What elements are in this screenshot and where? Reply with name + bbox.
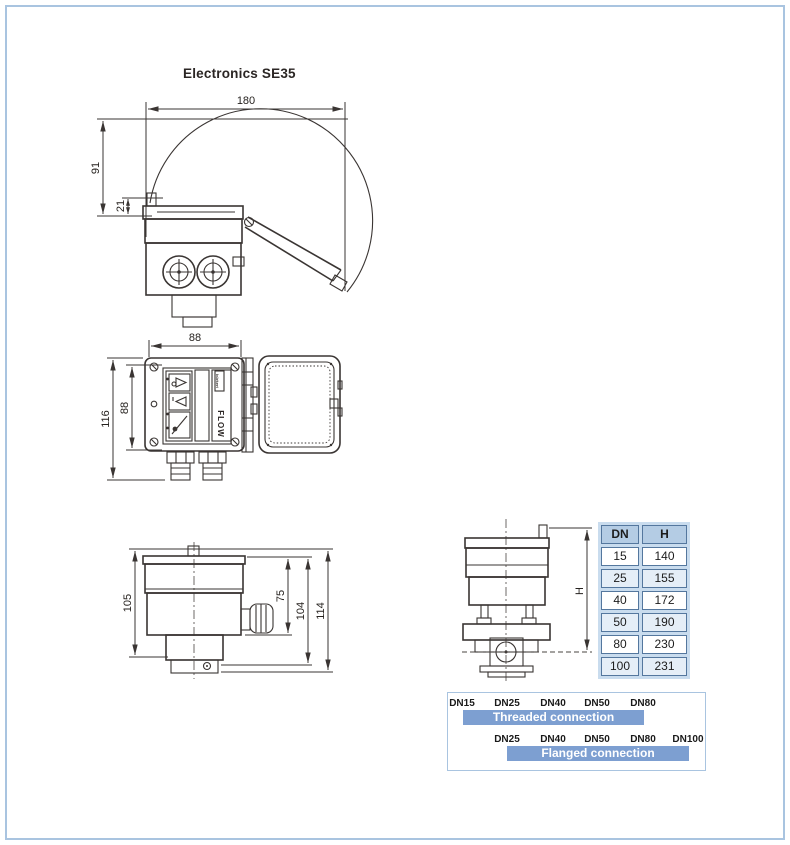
dim-h-label: H	[574, 587, 586, 595]
drawing-lid-open-view: 180 91 21	[90, 95, 373, 327]
dim-75-label: 75	[275, 590, 287, 602]
dn-h-table: DN H 15 140 25 155 40 172 50 190 80	[598, 522, 690, 679]
dim-88-width: 88	[149, 332, 241, 357]
brand-text: bürkert	[215, 374, 220, 388]
dim-75: 75	[245, 557, 312, 635]
datasheet-page: Electronics SE35	[0, 0, 790, 845]
h-value: 230	[642, 635, 687, 654]
dn-column-header: DN	[601, 525, 639, 544]
dim-104-label: 104	[295, 602, 307, 620]
open-lid	[245, 217, 348, 291]
dn-value: 80	[601, 635, 639, 654]
dn-size-label: DN80	[630, 698, 656, 709]
dim-h: H	[549, 528, 592, 650]
side-cable-gland	[241, 604, 273, 633]
dim-91-label: 91	[90, 162, 102, 174]
dn-value: 40	[601, 591, 639, 610]
dn-size-label: DN25	[494, 698, 520, 709]
dn-size-label: DN50	[584, 734, 610, 745]
dim-180-label: 180	[237, 95, 255, 107]
cable-gland-circles	[163, 256, 229, 288]
table-row: 50 190	[601, 613, 687, 632]
front-cable-glands	[167, 452, 226, 480]
dim-91: 91	[90, 119, 348, 216]
drawing-front-view: bürkert FLOW	[100, 332, 342, 480]
dim-116-label: 116	[100, 410, 112, 428]
dim-21-label: 21	[115, 200, 127, 212]
dim-88-height: 88	[119, 365, 162, 450]
table-row: 80 230	[601, 635, 687, 654]
h-value: 155	[642, 569, 687, 588]
dn-size-label: DN25	[494, 734, 520, 745]
dim-114: 114	[221, 551, 333, 672]
dn-size-label: DN80	[630, 734, 656, 745]
dn-value: 100	[601, 657, 639, 676]
dn-size-label: DN50	[584, 698, 610, 709]
table-header-row: DN H	[601, 525, 687, 544]
drawing-side-view: 105 75 104 114	[122, 542, 333, 679]
dn-value: 15	[601, 547, 639, 566]
dim-114-label: 114	[315, 602, 327, 620]
table-row: 25 155	[601, 569, 687, 588]
h-value: 190	[642, 613, 687, 632]
dim-180: 180	[146, 95, 345, 291]
dim-88-height-label: 88	[119, 402, 131, 414]
keypad-panel: bürkert FLOW	[163, 368, 231, 444]
connection-ranges-box: DN15 DN25 DN40 DN50 DN80 Threaded connec…	[447, 692, 706, 771]
table-row: 40 172	[601, 591, 687, 610]
dn-value: 50	[601, 613, 639, 632]
table-row: 100 231	[601, 657, 687, 676]
flanged-connection-bar: Flanged connection	[507, 746, 689, 761]
threaded-connection-bar: Threaded connection	[463, 710, 644, 725]
table-row: 15 140	[601, 547, 687, 566]
dn-size-label: DN15	[449, 698, 475, 709]
h-value: 140	[642, 547, 687, 566]
dn-value: 25	[601, 569, 639, 588]
h-value: 231	[642, 657, 687, 676]
h-value: 172	[642, 591, 687, 610]
dim-88-width-label: 88	[189, 332, 201, 344]
drawing-installed-view: H	[462, 519, 592, 681]
dn-size-label: DN40	[540, 698, 566, 709]
dn-size-label: DN40	[540, 734, 566, 745]
flow-label: FLOW	[216, 410, 225, 438]
dim-105-label: 105	[122, 594, 134, 612]
open-cover	[259, 356, 342, 453]
dn-size-label: DN100	[672, 734, 703, 745]
h-column-header: H	[642, 525, 687, 544]
